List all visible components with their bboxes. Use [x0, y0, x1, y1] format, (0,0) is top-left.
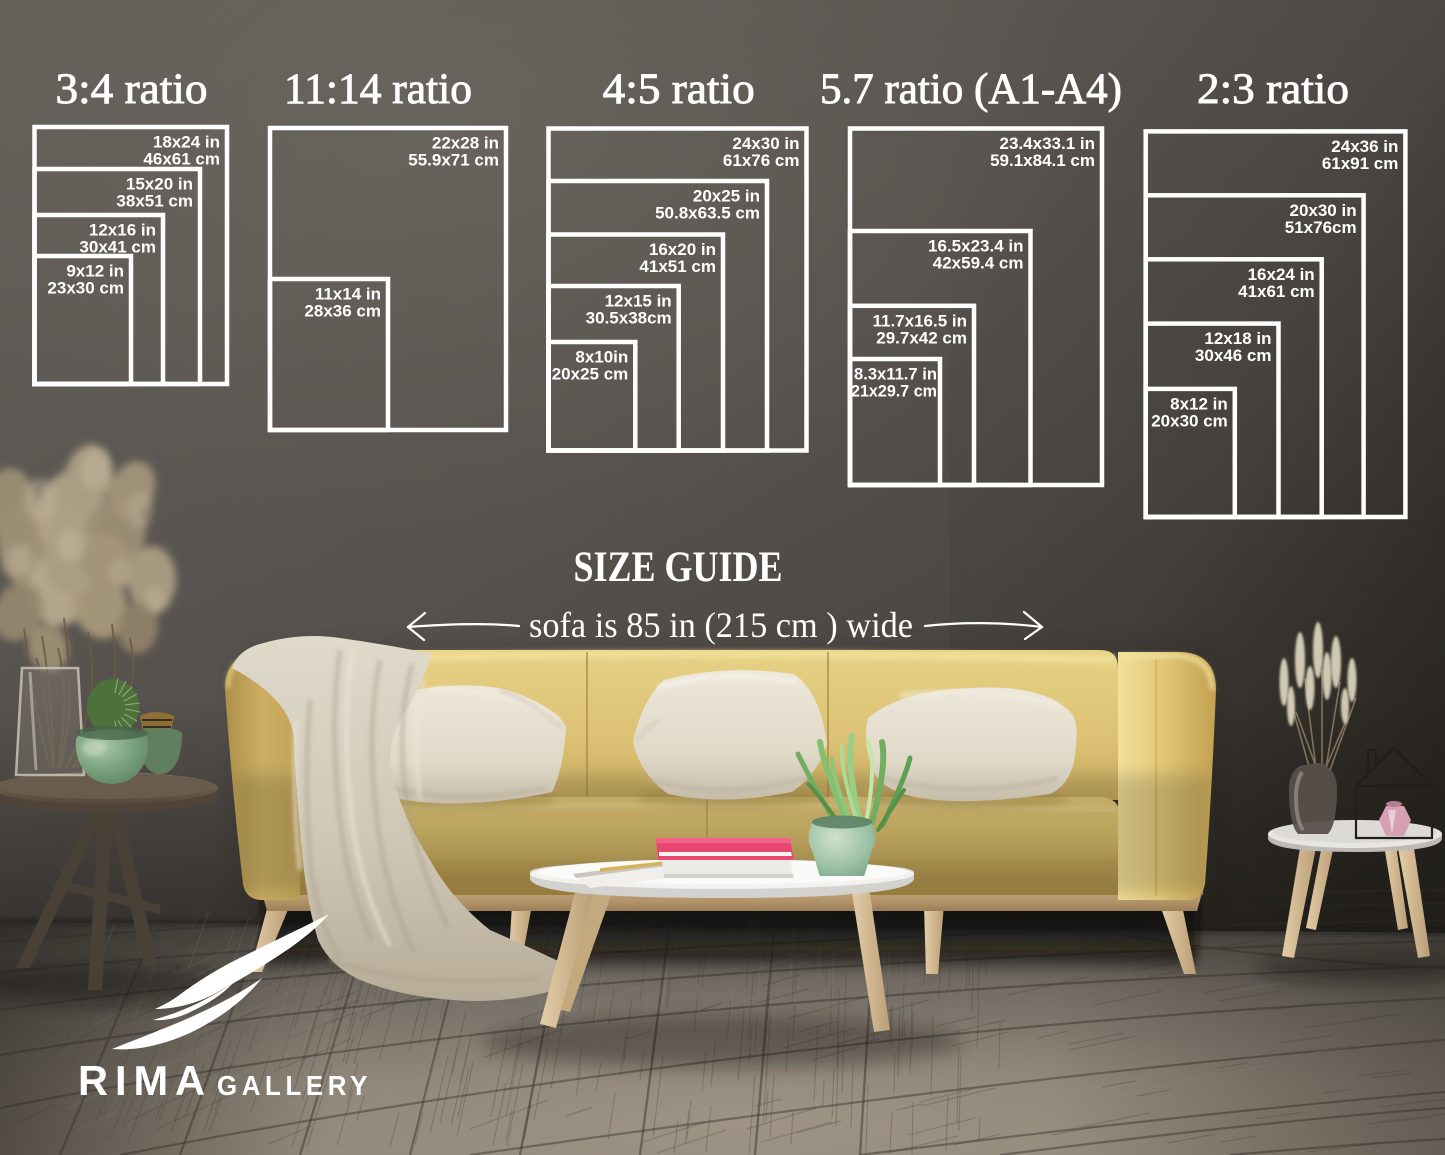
svg-text:20x25 cm: 20x25 cm: [552, 365, 629, 384]
svg-text:46x61 cm: 46x61 cm: [143, 150, 220, 169]
svg-text:61x91 cm: 61x91 cm: [1322, 154, 1399, 173]
svg-text:sofa is 85 in (215 cm ) wide: sofa is 85 in (215 cm ) wide: [529, 605, 913, 645]
svg-text:41x61 cm: 41x61 cm: [1238, 282, 1315, 301]
svg-text:SIZE GUIDE: SIZE GUIDE: [574, 544, 783, 591]
svg-text:61x76 cm: 61x76 cm: [723, 151, 800, 170]
svg-text:23x30 cm: 23x30 cm: [47, 279, 124, 298]
svg-text:21x29.7 cm: 21x29.7 cm: [851, 382, 937, 401]
svg-text:11:14 ratio: 11:14 ratio: [284, 66, 472, 113]
svg-text:55.9x71 cm: 55.9x71 cm: [408, 151, 499, 170]
svg-text:4:5 ratio: 4:5 ratio: [603, 66, 755, 113]
svg-text:3:4 ratio: 3:4 ratio: [56, 66, 208, 113]
svg-text:30.5x38cm: 30.5x38cm: [586, 309, 672, 328]
svg-text:50.8x63.5 cm: 50.8x63.5 cm: [655, 204, 760, 223]
svg-text:42x59.4 cm: 42x59.4 cm: [933, 254, 1024, 273]
svg-text:5.7 ratio (A1-A4): 5.7 ratio (A1-A4): [820, 66, 1122, 113]
svg-text:28x36 cm: 28x36 cm: [304, 302, 381, 321]
svg-text:RIMA: RIMA: [78, 1057, 212, 1104]
svg-text:2:3 ratio: 2:3 ratio: [1197, 66, 1349, 113]
svg-text:GALLERY: GALLERY: [217, 1070, 372, 1101]
svg-text:51x76cm: 51x76cm: [1285, 218, 1357, 237]
svg-text:41x51 cm: 41x51 cm: [639, 257, 716, 276]
svg-text:59.1x84.1 cm: 59.1x84.1 cm: [990, 151, 1095, 170]
svg-text:38x51 cm: 38x51 cm: [116, 192, 193, 211]
svg-text:30x41 cm: 30x41 cm: [79, 238, 156, 257]
svg-text:20x30 cm: 20x30 cm: [1151, 411, 1228, 430]
svg-text:29.7x42 cm: 29.7x42 cm: [876, 328, 967, 347]
svg-text:30x46 cm: 30x46 cm: [1195, 346, 1272, 365]
